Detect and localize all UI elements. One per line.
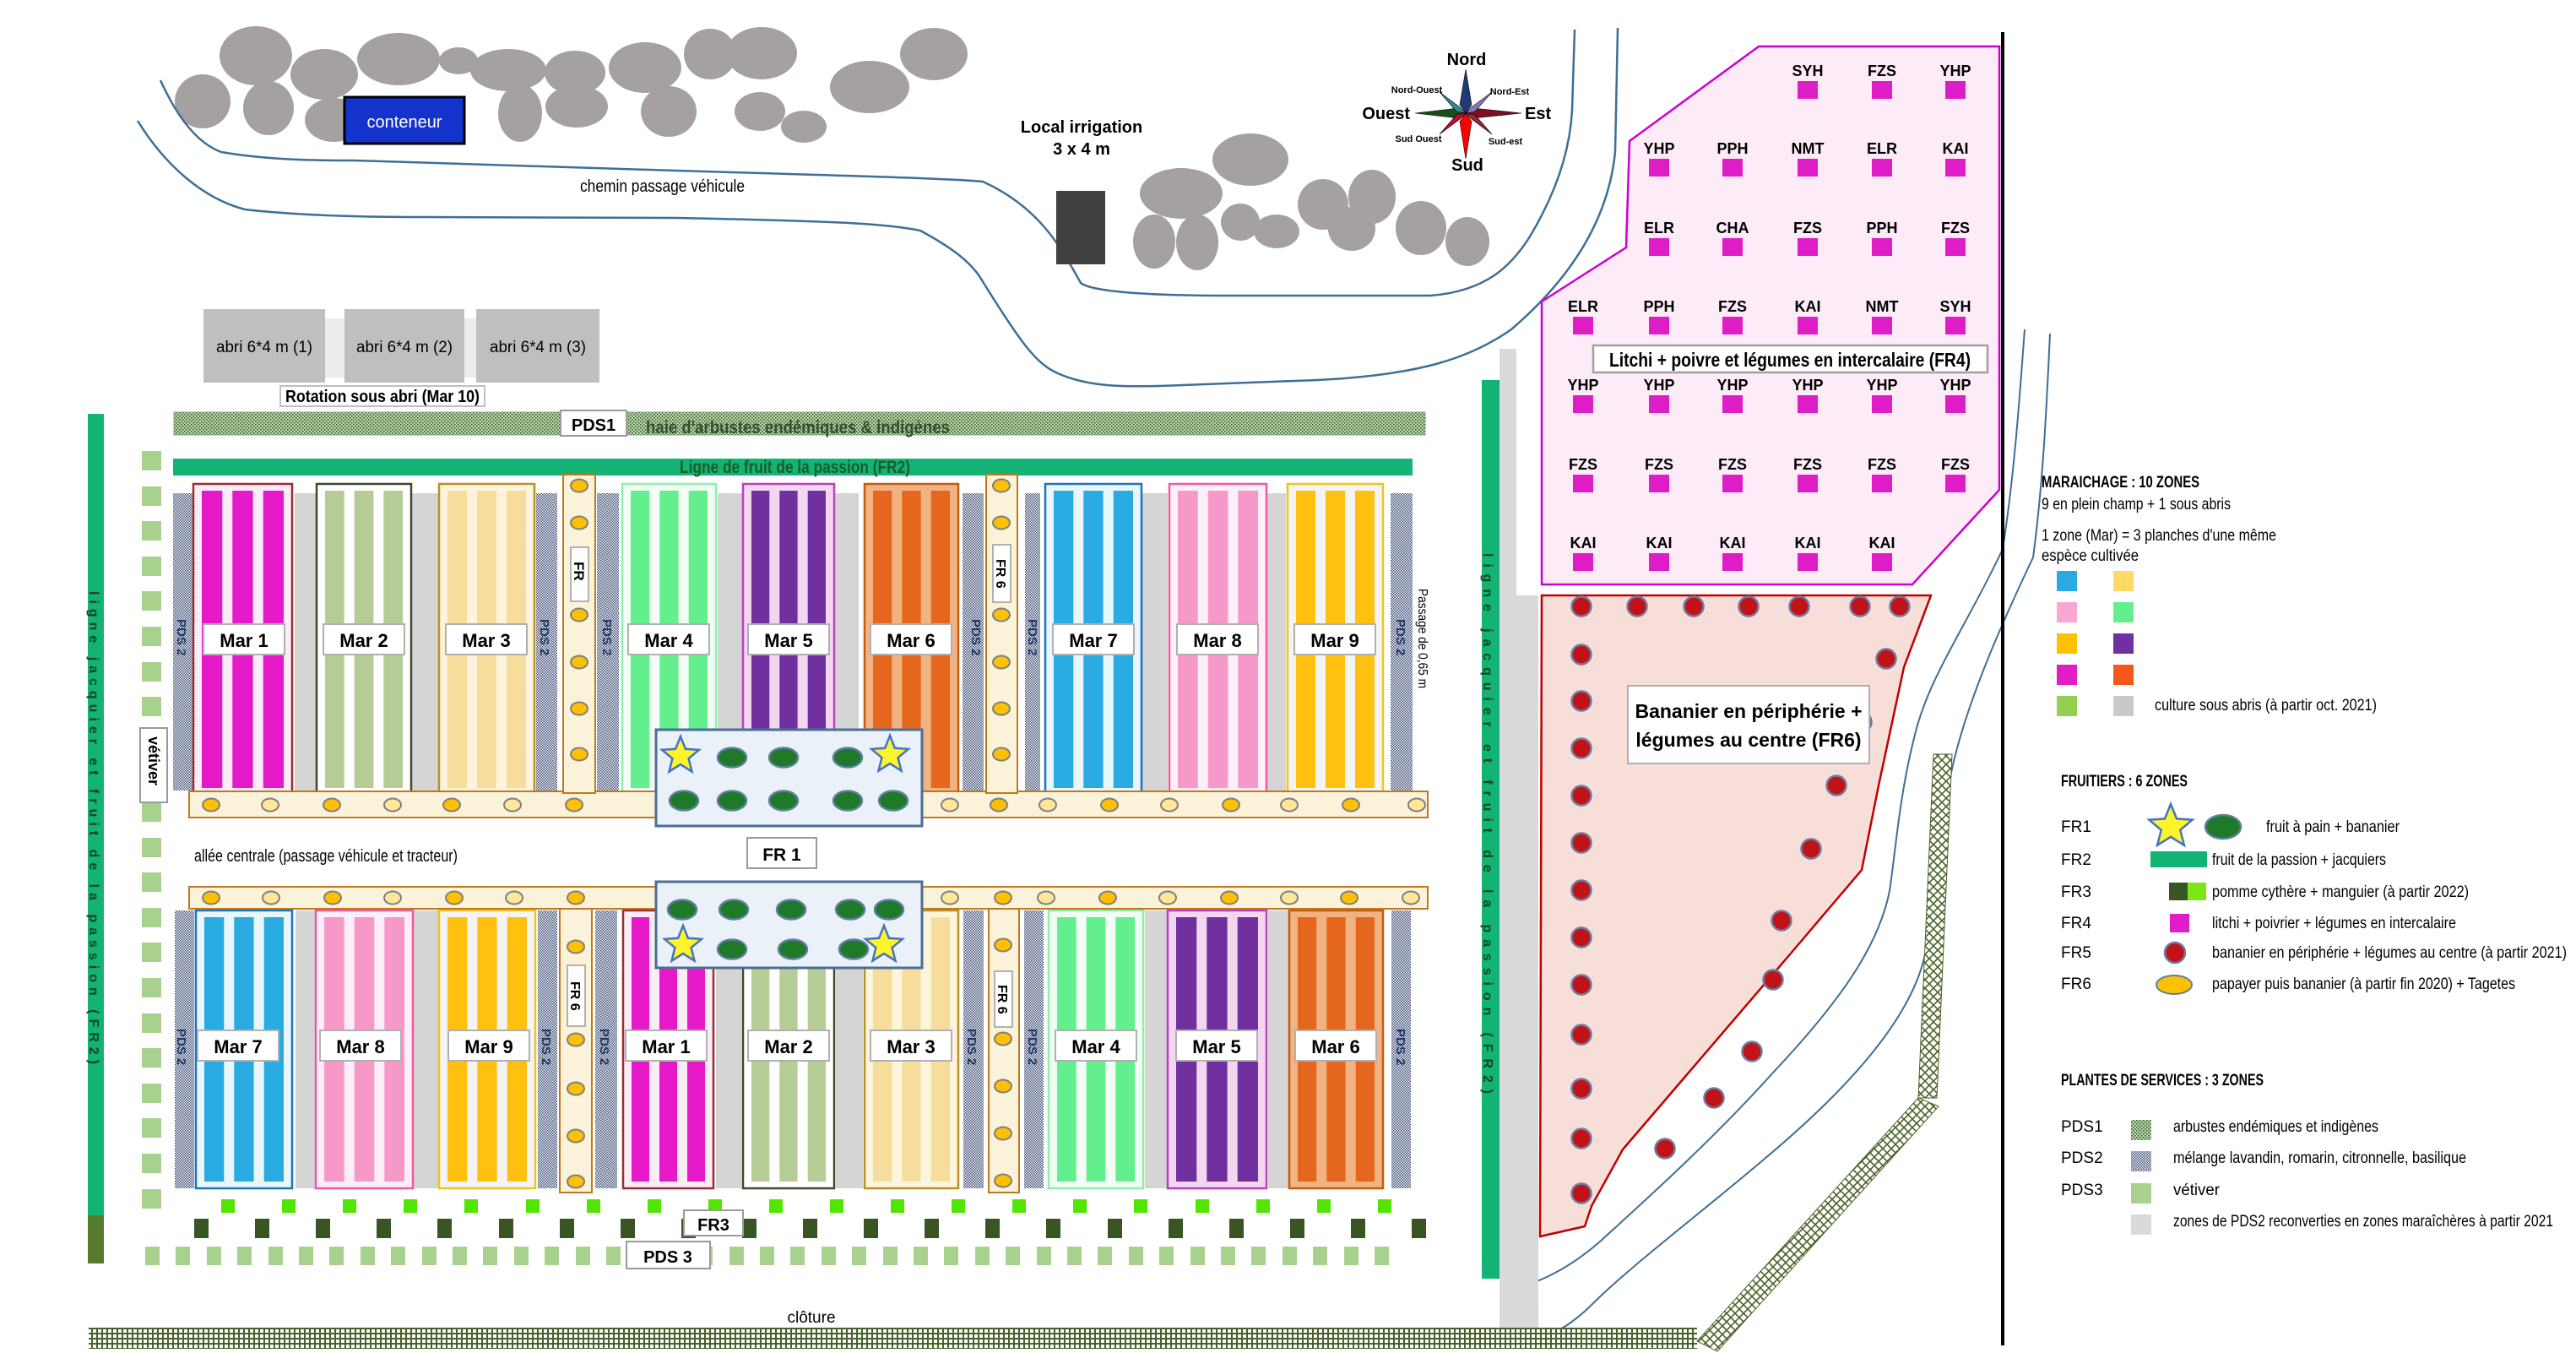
svg-text:CHA: CHA (1716, 220, 1749, 236)
svg-text:zones de PDS2 reconverties en: zones de PDS2 reconverties en zones mara… (2173, 1213, 2553, 1231)
svg-text:conteneur: conteneur (367, 113, 442, 132)
svg-text:FR3: FR3 (697, 1216, 729, 1235)
svg-text:FR 6: FR 6 (567, 981, 582, 1011)
svg-text:PPH: PPH (1643, 298, 1674, 315)
svg-text:PDS 2: PDS 2 (597, 1029, 611, 1065)
svg-text:PDS 2: PDS 2 (1393, 619, 1407, 655)
svg-text:Nord: Nord (1447, 51, 1487, 69)
svg-text:KAI: KAI (1869, 535, 1895, 552)
svg-text:Est: Est (1525, 105, 1551, 123)
svg-text:allée centrale (passage véhicu: allée centrale (passage véhicule et trac… (194, 847, 458, 866)
svg-text:Mar 7: Mar 7 (214, 1036, 262, 1057)
svg-text:PDS 2: PDS 2 (1025, 619, 1039, 655)
svg-text:PDS 2: PDS 2 (539, 1029, 553, 1065)
svg-text:Nord-Est: Nord-Est (1490, 87, 1530, 97)
svg-text:PDS1: PDS1 (2061, 1118, 2103, 1136)
svg-text:PDS 2: PDS 2 (537, 619, 551, 655)
svg-text:Mar 7: Mar 7 (1069, 630, 1117, 651)
svg-text:KAI: KAI (1720, 535, 1746, 552)
svg-text:PDS2: PDS2 (2061, 1149, 2103, 1167)
svg-text:YHP: YHP (1643, 140, 1674, 157)
svg-text:KAI: KAI (1795, 535, 1821, 552)
svg-text:Mar 5: Mar 5 (764, 630, 812, 651)
svg-text:FZS: FZS (1718, 456, 1747, 473)
svg-text:Mar 9: Mar 9 (1310, 630, 1359, 651)
svg-text:Mar 4: Mar 4 (1071, 1036, 1120, 1057)
svg-text:bananier en périphérie + légum: bananier en périphérie + légumes au cent… (2212, 944, 2567, 962)
svg-text:1 zone (Mar) = 3 planches d'un: 1 zone (Mar) = 3 planches d'une même (2042, 527, 2276, 545)
svg-text:Sud Ouest: Sud Ouest (1395, 134, 1441, 144)
svg-text:SYH: SYH (1939, 298, 1971, 315)
svg-text:SYH: SYH (1792, 62, 1823, 79)
svg-text:Mar 1: Mar 1 (642, 1036, 690, 1057)
svg-text:vétiver: vétiver (145, 736, 162, 785)
svg-text:FR1: FR1 (2061, 818, 2091, 836)
svg-text:YHP: YHP (1567, 377, 1598, 394)
svg-text:PDS3: PDS3 (2061, 1182, 2103, 1199)
svg-text:FZS: FZS (1793, 456, 1822, 473)
svg-text:YHP: YHP (1939, 377, 1971, 394)
svg-text:FR6: FR6 (2061, 975, 2091, 993)
svg-text:Passage de 0,65 m: Passage de 0,65 m (1415, 589, 1429, 688)
svg-text:PDS 2: PDS 2 (1025, 1029, 1039, 1065)
svg-text:abri 6*4 m (1): abri 6*4 m (1) (216, 339, 312, 356)
svg-text:chemin passage véhicule: chemin passage véhicule (580, 177, 745, 196)
svg-text:fruit à pain + bananier: fruit à pain + bananier (2266, 818, 2400, 836)
svg-text:PPH: PPH (1866, 220, 1897, 236)
svg-text:PDS 3: PDS 3 (643, 1248, 692, 1267)
svg-text:FZS: FZS (1868, 456, 1896, 473)
svg-text:FR2: FR2 (2061, 851, 2091, 869)
svg-text:FRUITIERS : 6 ZONES: FRUITIERS : 6 ZONES (2061, 772, 2188, 791)
svg-text:Bananier en périphérie +: Bananier en périphérie + (1635, 700, 1862, 722)
svg-text:mélange lavandin, romarin, cit: mélange lavandin, romarin, citronnelle, … (2173, 1149, 2466, 1167)
svg-text:PDS1: PDS1 (572, 416, 616, 435)
svg-text:espèce cultivée: espèce cultivée (2042, 547, 2139, 565)
svg-text:FZS: FZS (1645, 456, 1673, 473)
svg-text:FR 1: FR 1 (762, 845, 801, 865)
svg-text:Mar 6: Mar 6 (887, 630, 935, 651)
svg-text:fruit de la passion + jacquier: fruit de la passion + jacquiers (2212, 851, 2386, 869)
svg-text:KAI: KAI (1943, 140, 1969, 157)
svg-text:Sud-est: Sud-est (1489, 137, 1523, 147)
svg-text:KAI: KAI (1795, 298, 1821, 315)
svg-text:Ligne de fruit de la passion (: Ligne de fruit de la passion (FR2) (680, 458, 910, 477)
svg-text:papayer puis bananier (à parti: papayer puis bananier (à partir fin 2020… (2212, 975, 2515, 993)
svg-text:ELR: ELR (1568, 298, 1598, 315)
svg-text:YHP: YHP (1792, 377, 1823, 394)
svg-text:KAI: KAI (1646, 535, 1673, 552)
svg-text:ELR: ELR (1867, 140, 1897, 157)
svg-text:légumes au centre (FR6): légumes au centre (FR6) (1635, 729, 1861, 751)
svg-text:culture sous abris (à partir o: culture sous abris (à partir oct. 2021) (2155, 697, 2377, 715)
svg-text:FZS: FZS (1868, 62, 1896, 79)
svg-text:Mar 8: Mar 8 (336, 1036, 384, 1057)
svg-text:Litchi + poivre et légumes en: Litchi + poivre et légumes en intercalai… (1609, 349, 1971, 371)
svg-text:PDS 2: PDS 2 (174, 1029, 188, 1065)
svg-text:Mar 2: Mar 2 (764, 1036, 812, 1057)
svg-text:Mar 2: Mar 2 (339, 630, 388, 651)
svg-text:Local irrigation: Local irrigation (1021, 118, 1142, 137)
svg-text:ELR: ELR (1644, 220, 1674, 236)
svg-text:Nord-Ouest: Nord-Ouest (1391, 85, 1443, 95)
svg-text:FZS: FZS (1941, 220, 1970, 236)
svg-text:Mar 9: Mar 9 (464, 1036, 512, 1057)
svg-text:PPH: PPH (1716, 140, 1748, 157)
svg-text:abri 6*4 m (3): abri 6*4 m (3) (490, 339, 586, 356)
svg-text:PDS 2: PDS 2 (1393, 1029, 1407, 1065)
svg-text:Mar 5: Mar 5 (1192, 1036, 1240, 1057)
svg-text:Mar 3: Mar 3 (887, 1036, 935, 1057)
svg-text:Mar 1: Mar 1 (220, 630, 268, 651)
svg-text:clôture: clôture (787, 1309, 835, 1327)
svg-text:3 x 4 m: 3 x 4 m (1053, 140, 1110, 159)
svg-text:FR: FR (571, 562, 587, 581)
svg-text:Rotation sous abri (Mar 10): Rotation sous abri (Mar 10) (285, 388, 480, 406)
svg-text:arbustes endémiques et indigèn: arbustes endémiques et indigènes (2173, 1118, 2378, 1136)
svg-text:Mar 6: Mar 6 (1311, 1036, 1359, 1057)
svg-text:FZS: FZS (1718, 298, 1747, 315)
svg-text:FZS: FZS (1793, 220, 1822, 236)
svg-text:YHP: YHP (1643, 377, 1674, 394)
svg-text:PLANTES DE SERVICES : 3 ZONES: PLANTES DE SERVICES : 3 ZONES (2061, 1071, 2264, 1089)
svg-text:Mar 4: Mar 4 (644, 630, 693, 651)
svg-text:abri 6*4 m (2): abri 6*4 m (2) (356, 339, 453, 356)
svg-text:9 en plein champ + 1 sous abri: 9 en plein champ + 1 sous abris (2042, 496, 2231, 513)
svg-text:haie d'arbustes endémiques & i: haie d'arbustes endémiques & indigènes (646, 418, 950, 437)
svg-text:FR 6: FR 6 (993, 559, 1007, 589)
svg-text:NMT: NMT (1866, 298, 1899, 315)
svg-text:litchi + poivrier + légumes en: litchi + poivrier + légumes en intercala… (2212, 915, 2456, 932)
svg-text:PDS 2: PDS 2 (174, 619, 188, 655)
svg-text:FR5: FR5 (2061, 944, 2091, 962)
svg-text:PDS 2: PDS 2 (968, 619, 983, 655)
svg-text:YHP: YHP (1866, 377, 1897, 394)
svg-text:FR4: FR4 (2061, 915, 2091, 932)
svg-text:FZS: FZS (1941, 456, 1970, 473)
svg-text:MARAICHAGE : 10 ZONES: MARAICHAGE : 10 ZONES (2042, 473, 2199, 492)
svg-text:Ouest: Ouest (1362, 105, 1410, 123)
svg-text:Mar 3: Mar 3 (462, 630, 510, 651)
svg-text:FZS: FZS (1569, 456, 1597, 473)
svg-text:Mar 8: Mar 8 (1193, 630, 1241, 651)
svg-text:Sud: Sud (1451, 156, 1483, 175)
svg-text:vétiver: vétiver (2173, 1182, 2221, 1199)
svg-text:FR3: FR3 (2061, 883, 2091, 901)
svg-text:PDS 2: PDS 2 (964, 1029, 979, 1065)
svg-text:pomme cythère + manguier (à pa: pomme cythère + manguier (à partir 2022) (2212, 883, 2469, 901)
svg-text:YHP: YHP (1939, 62, 1971, 79)
svg-text:KAI: KAI (1570, 535, 1597, 552)
svg-text:YHP: YHP (1716, 377, 1748, 394)
svg-text:NMT: NMT (1792, 140, 1825, 157)
svg-text:PDS 2: PDS 2 (599, 619, 614, 655)
svg-text:FR 6: FR 6 (995, 985, 1009, 1014)
